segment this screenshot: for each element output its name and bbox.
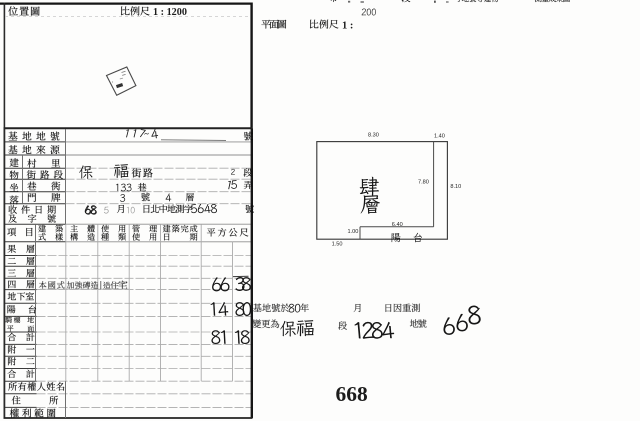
svg-text:8.10: 8.10: [450, 184, 461, 190]
svg-text:1.00: 1.00: [348, 229, 359, 235]
svg-text:1 :: 1 :: [342, 21, 353, 32]
svg-text:8.30: 8.30: [368, 133, 379, 139]
svg-text:7.80: 7.80: [418, 180, 429, 186]
svg-text:668: 668: [336, 382, 369, 406]
svg-text:1.50: 1.50: [332, 242, 343, 248]
svg-text:6.40: 6.40: [392, 222, 403, 228]
svg-text:1 : 1200: 1 : 1200: [153, 7, 187, 18]
svg-text:1.40: 1.40: [434, 134, 445, 140]
